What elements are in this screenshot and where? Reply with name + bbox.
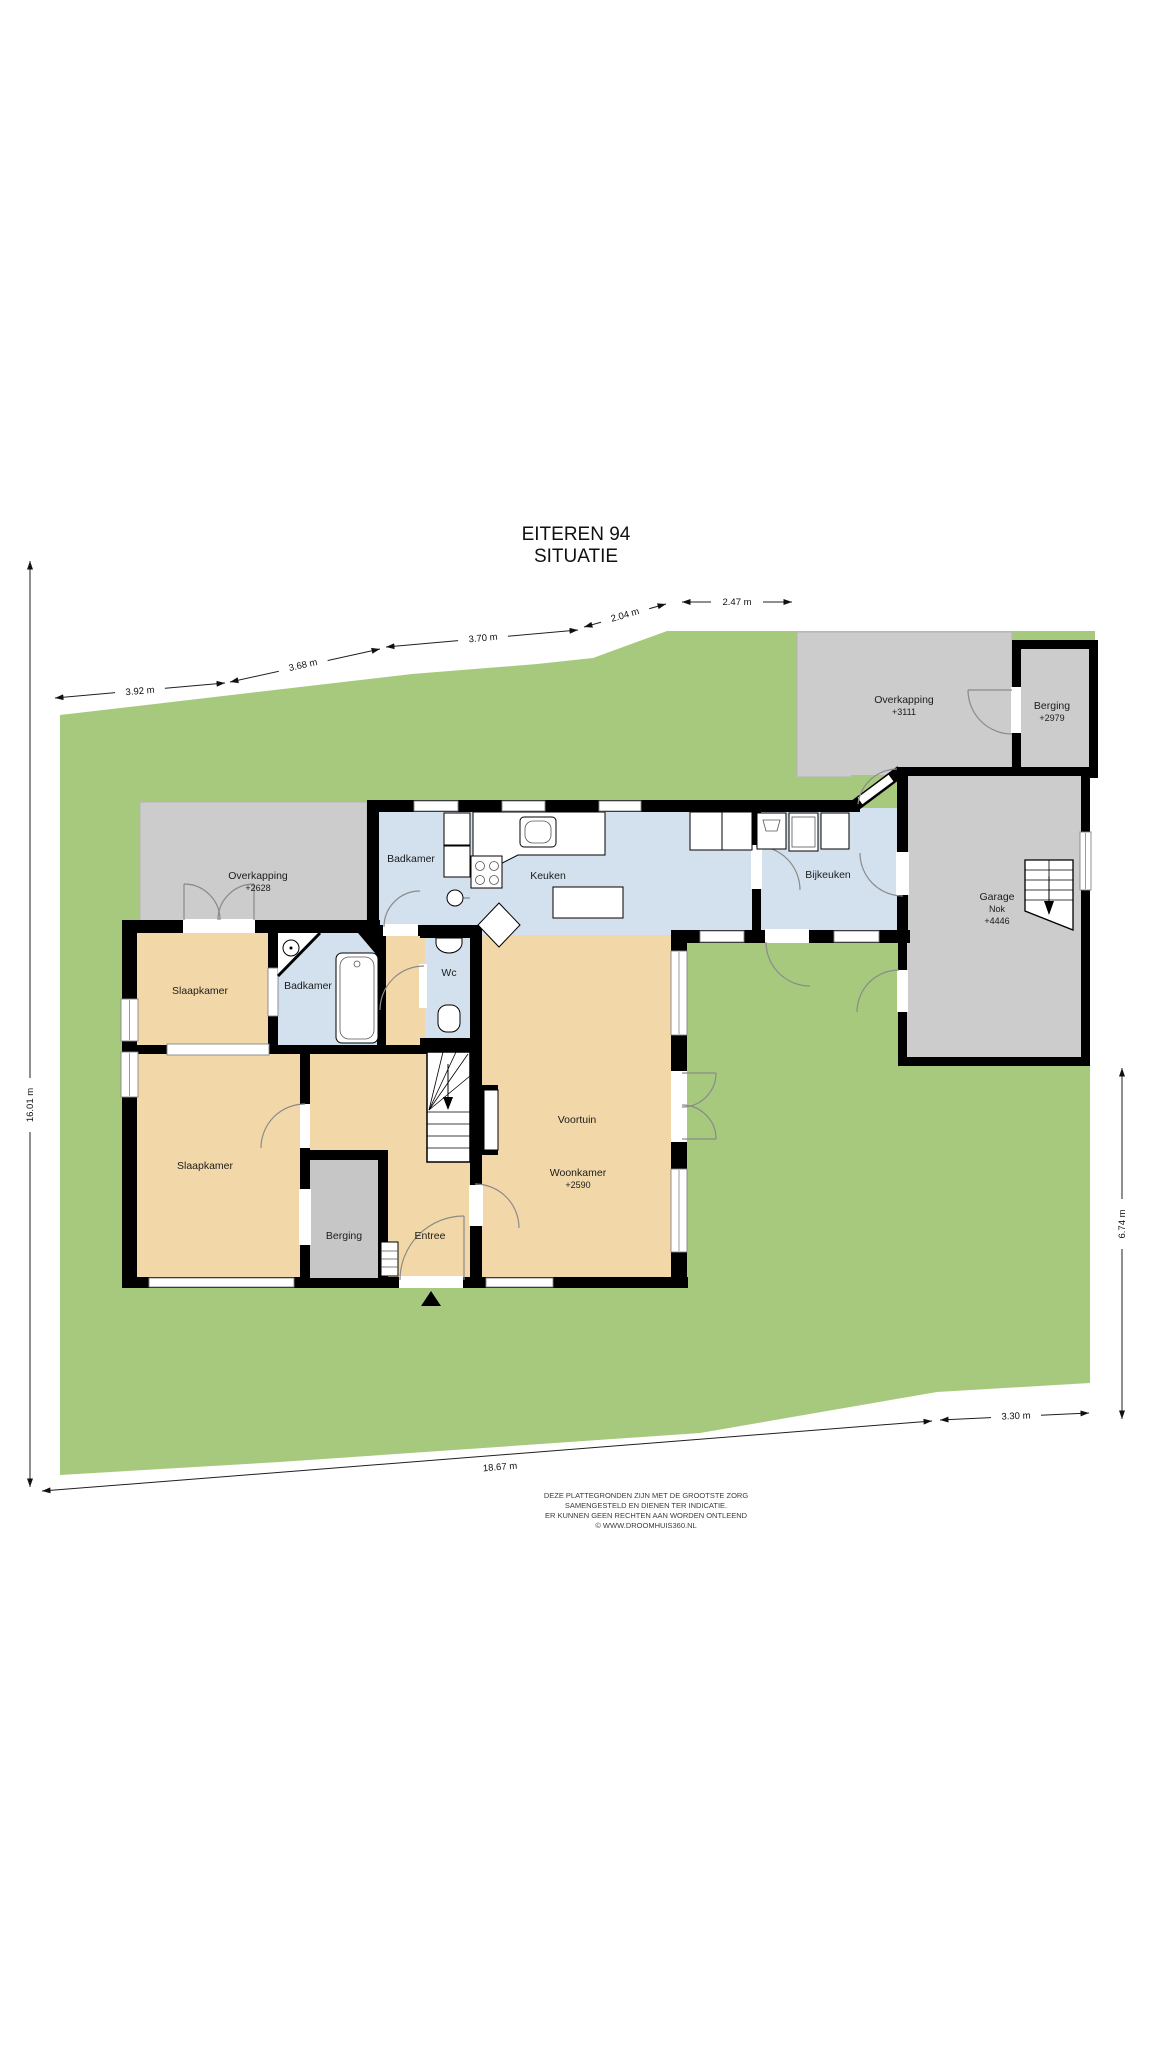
dim-label: 3.30 m	[1001, 1410, 1031, 1422]
door-opening	[183, 919, 255, 933]
window	[700, 931, 744, 942]
cabinet	[444, 813, 470, 845]
dim-label: 16.01 m	[25, 1088, 36, 1122]
room-label-berging-binnen: Berging	[326, 1230, 362, 1242]
room-value-garage: +4446	[984, 916, 1009, 926]
room-label-wc: Wc	[441, 967, 456, 979]
door-opening	[751, 845, 762, 889]
room-label-berging-top: Berging	[1034, 700, 1070, 712]
room-value-overkapping-right: +3111	[892, 707, 916, 717]
disclaimer-line2: SAMENGESTELD EN DIENEN TER INDICATIE.	[565, 1501, 727, 1510]
storage-room-floor	[310, 1160, 378, 1278]
page-title-line2: SITUATIE	[534, 546, 618, 567]
situatie-floorplan: EITEREN 94 SITUATIE	[0, 0, 1152, 2048]
room-label-slaapkamer-onder: Slaapkamer	[177, 1160, 234, 1172]
window	[486, 1278, 553, 1287]
room-label-badkamer-links: Badkamer	[284, 980, 332, 992]
door-opening	[383, 924, 418, 936]
room-value-overkapping-left: +2628	[245, 883, 270, 893]
disclaimer-line4: © WWW.DROOMHUIS360.NL	[595, 1521, 696, 1530]
kitchen-island	[553, 887, 623, 918]
door-opening	[765, 929, 809, 943]
page-title-line1: EITEREN 94	[522, 524, 631, 545]
floorplan-page: EITEREN 94 SITUATIE	[0, 0, 1152, 2048]
room-label-keuken: Keuken	[530, 870, 566, 882]
room-label-entree: Entree	[415, 1230, 446, 1242]
appliance	[690, 812, 722, 850]
room-label-voortuin: Voortuin	[558, 1114, 597, 1126]
disclaimer-line3: ER KUNNEN GEEN RECHTEN AAN WORDEN ONTLEE…	[545, 1511, 748, 1520]
door-opening	[897, 970, 908, 1012]
room-label-overkapping-right: Overkapping	[874, 694, 934, 706]
bathtub	[336, 953, 378, 1043]
window	[502, 801, 545, 811]
toilet	[438, 1005, 460, 1032]
room-label-woonkamer: Woonkamer	[550, 1167, 607, 1179]
disclaimer-line1: DEZE PLATTEGRONDEN ZIJN MET DE GROOTSTE …	[544, 1491, 748, 1500]
room-label-badkamer-top: Badkamer	[387, 853, 435, 865]
livingroom-floor	[468, 935, 680, 1285]
wc-sink	[436, 938, 462, 953]
room-label-bijkeuken: Bijkeuken	[805, 869, 851, 881]
window	[599, 801, 641, 811]
dim-label: 2.47 m	[722, 597, 751, 608]
door-opening	[399, 1276, 463, 1288]
room-sub-garage: Nok	[989, 904, 1006, 914]
appliance	[722, 812, 752, 850]
window	[268, 968, 278, 1016]
washbasin	[447, 890, 463, 906]
door-opening	[1011, 687, 1021, 733]
window	[167, 1044, 269, 1055]
window	[149, 1278, 294, 1287]
house-stairs	[427, 1052, 470, 1162]
window	[834, 931, 879, 942]
room-label-slaapkamer-boven: Slaapkamer	[172, 985, 229, 997]
room-value-woonkamer: +2590	[565, 1180, 590, 1190]
door-opening	[896, 852, 909, 895]
room-value-berging-top: +2979	[1039, 713, 1064, 723]
dim-label: 6.74 m	[1117, 1209, 1128, 1238]
cabinet	[444, 846, 470, 877]
door-opening	[469, 1185, 483, 1226]
appliance	[821, 813, 849, 849]
window	[414, 801, 458, 811]
appliance	[789, 813, 818, 851]
door-opening	[300, 1104, 310, 1148]
room-label-garage: Garage	[979, 891, 1014, 903]
room-label-overkapping-left: Overkapping	[228, 870, 288, 882]
door-opening	[299, 1189, 311, 1245]
door-opening	[419, 964, 427, 1008]
